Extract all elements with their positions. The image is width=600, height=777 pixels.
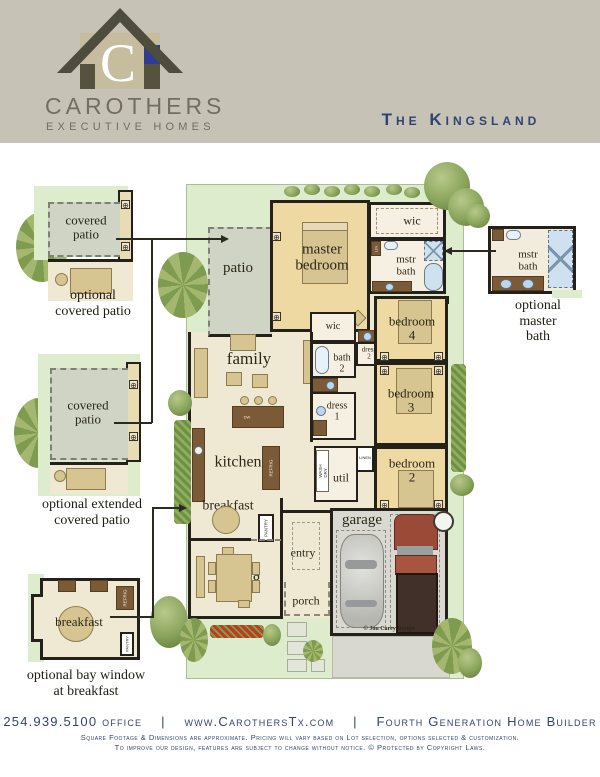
- sink-icon: [326, 381, 335, 390]
- option3-room-label: breakfast: [55, 615, 103, 629]
- footer-separator: |: [161, 714, 166, 729]
- linen-label: LINEN: [359, 456, 371, 460]
- grass-tuft-icon: [344, 184, 360, 195]
- stepping-stone: [287, 622, 307, 637]
- flower-bed: [210, 625, 264, 638]
- sink-icon: [363, 332, 372, 341]
- grass-tuft-icon: [386, 184, 402, 195]
- window-marker-icon: ⊕: [121, 242, 130, 251]
- connector-line: [116, 238, 222, 240]
- cooktop-icon: [194, 446, 203, 455]
- designer-credit: © Jon Carey Design: [363, 626, 414, 632]
- room-label-hall-wic: wic: [326, 322, 340, 333]
- chair-icon: [54, 470, 66, 482]
- wall: [446, 296, 449, 304]
- shrub-icon: [466, 204, 490, 228]
- bed-pillow-icon: [302, 222, 348, 231]
- option1-room-label: covered patio: [65, 213, 106, 240]
- refrig-label: REFRIG: [269, 459, 274, 476]
- lin-label: LIN: [374, 246, 379, 252]
- chair-icon: [208, 562, 216, 575]
- connector-arrow-icon: [444, 247, 452, 255]
- sink-icon: [385, 283, 394, 291]
- grass-tuft-icon: [284, 186, 300, 197]
- option4-lot-strip: [552, 290, 582, 298]
- room-label-bedroom-2: bedroom 2: [389, 456, 435, 483]
- tub-icon: [424, 263, 443, 291]
- option3-bay-window: [31, 594, 43, 642]
- car-windshield: [345, 560, 377, 569]
- kitchen-counter: [192, 428, 205, 502]
- option4-room-label: mstr bath: [518, 249, 538, 272]
- sofa-icon: [194, 348, 208, 398]
- grass-tuft-icon: [404, 187, 420, 198]
- room-label-util: util: [333, 472, 349, 485]
- toilet-icon: [384, 241, 398, 250]
- wall-opening: [251, 539, 281, 541]
- refrig-label: REFRIG: [123, 589, 128, 606]
- grass-tuft-icon: [364, 186, 380, 197]
- connector-line: [152, 507, 180, 509]
- room-label-master-bath: mstr bath: [396, 254, 416, 277]
- option1-caption: optional covered patio: [55, 288, 131, 319]
- dining-table-icon: [216, 554, 252, 602]
- option1-lot-strip: [34, 186, 48, 260]
- option1-lot-strip: [34, 186, 128, 202]
- room-label-patio: patio: [223, 261, 253, 277]
- table-icon: [66, 468, 106, 490]
- room-label-garage: garage: [342, 513, 382, 529]
- truck-cab: [395, 555, 437, 575]
- chair-icon: [238, 600, 250, 608]
- window-marker-icon: ⊕: [272, 312, 281, 321]
- room-label-master-bedroom: master bedroom: [295, 242, 348, 274]
- grass-tuft-icon: [304, 184, 320, 195]
- palm-tree-icon: [158, 252, 208, 318]
- option2-house-wall: [126, 362, 141, 462]
- sink-icon: [522, 279, 534, 289]
- room-label-master-wic: wic: [403, 215, 420, 228]
- connector-arrow-icon: [221, 235, 229, 243]
- window-marker-icon: ⊕: [129, 432, 138, 441]
- footer-disclaimer-2: To improve our design, features are subj…: [0, 743, 600, 752]
- header-band: C CAROTHERS EXECUTIVE HOMES The Kingslan…: [0, 0, 600, 143]
- truck-bed: [396, 573, 438, 634]
- wall: [189, 538, 251, 541]
- counter: [58, 580, 76, 592]
- stepping-stone: [287, 659, 307, 672]
- wall: [282, 510, 332, 513]
- footer-separator: |: [353, 714, 358, 729]
- tree-icon: [458, 648, 482, 678]
- window-marker-icon: ⊕: [434, 366, 443, 375]
- grass-tuft-icon: [324, 186, 340, 197]
- chair-icon: [252, 580, 260, 593]
- connector-line: [114, 422, 152, 424]
- option2-caption: optional extended covered patio: [42, 497, 142, 528]
- sideboard-icon: [196, 556, 205, 598]
- connector-line: [151, 238, 153, 423]
- footer-contact-line: 254.939.5100 office | www.CarothersTx.co…: [0, 714, 600, 729]
- shrub-icon: [168, 390, 192, 416]
- window-marker-icon: ⊕: [380, 366, 389, 375]
- room-label-bedroom-3: bedroom 3: [388, 386, 434, 413]
- chair-icon: [222, 547, 234, 555]
- cabinet: [492, 229, 504, 241]
- pantry-label: PANTRY: [264, 519, 269, 537]
- room-label-family: family: [227, 350, 271, 368]
- carothers-house-logo-icon: C: [55, 5, 185, 97]
- dw-label: DW: [244, 415, 251, 420]
- room-label-bath-2: bath 2: [333, 354, 350, 375]
- palm-tree-icon: [180, 618, 208, 662]
- shrub-icon: [450, 474, 474, 496]
- logo-monogram: C: [100, 33, 136, 93]
- stool-icon: [254, 396, 263, 405]
- pantry-label: PANTRY: [125, 636, 130, 652]
- dress1-cabinet: [313, 420, 327, 436]
- footer-phone: 254.939.5100 office: [3, 714, 142, 729]
- counter: [90, 580, 108, 592]
- brochure-page: C CAROTHERS EXECUTIVE HOMES The Kingslan…: [0, 0, 600, 777]
- connector-line: [452, 250, 496, 252]
- window-marker-icon: ⊕: [380, 352, 389, 361]
- room-patio: [208, 227, 272, 337]
- wash-dry-label: WASH DRY: [318, 464, 328, 477]
- sink-icon: [500, 279, 512, 289]
- chair-icon: [208, 580, 216, 593]
- kitchen-island: [232, 406, 284, 428]
- brand-name: CAROTHERS: [45, 93, 225, 120]
- window-marker-icon: ⊕: [129, 380, 138, 389]
- truck-windshield: [397, 546, 433, 555]
- chair-icon: [252, 374, 268, 388]
- sink-icon: [316, 406, 326, 416]
- brand-subtitle: EXECUTIVE HOMES: [46, 121, 215, 133]
- car-icon: [340, 534, 384, 628]
- hedge: [451, 364, 466, 472]
- ottoman-icon: [230, 334, 256, 351]
- shrub-icon: [263, 624, 281, 646]
- room-label-kitchen: kitchen: [214, 455, 261, 472]
- entry-rug: [292, 522, 320, 570]
- shower-icon: [548, 230, 573, 288]
- room-label-porch: porch: [292, 595, 319, 608]
- wall: [310, 332, 313, 442]
- chair-icon: [55, 273, 68, 286]
- option4-caption: optional master bath: [507, 298, 569, 345]
- chair-icon: [226, 372, 242, 386]
- wall: [188, 616, 282, 619]
- toilet-icon: [506, 230, 521, 240]
- breakfast-table-icon: [212, 506, 240, 534]
- window-marker-icon: ⊕: [121, 200, 130, 209]
- window-marker-icon: ⊕: [272, 232, 281, 241]
- shrub-icon: [303, 640, 323, 662]
- room-label-bedroom-4: bedroom 4: [389, 314, 435, 341]
- window-marker-icon: ⊕: [434, 352, 443, 361]
- connector-arrow-icon: [179, 504, 187, 512]
- option2-room-label: covered patio: [67, 398, 108, 425]
- room-label-dress-1: dress 1: [327, 402, 348, 423]
- stool-icon: [268, 396, 277, 405]
- connector-line: [152, 507, 154, 617]
- footer-disclaimer-1: Square Footage & Dimensions are approxim…: [0, 733, 600, 742]
- connector-line: [110, 616, 154, 618]
- truck-hood: [394, 514, 438, 550]
- stool-icon: [240, 396, 249, 405]
- footer-tagline: Fourth Generation Home Builder: [377, 714, 597, 729]
- water-heater-icon: [433, 511, 454, 532]
- car-rear-window: [345, 600, 377, 607]
- plan-title: The Kingsland: [355, 110, 567, 130]
- footer-website[interactable]: www.CarothersTx.com: [184, 714, 334, 729]
- chair-icon: [252, 562, 260, 575]
- shower-icon: [424, 241, 443, 261]
- wall: [280, 498, 283, 619]
- tub-icon: [315, 346, 329, 374]
- option3-caption: optional bay window at breakfast: [27, 668, 145, 699]
